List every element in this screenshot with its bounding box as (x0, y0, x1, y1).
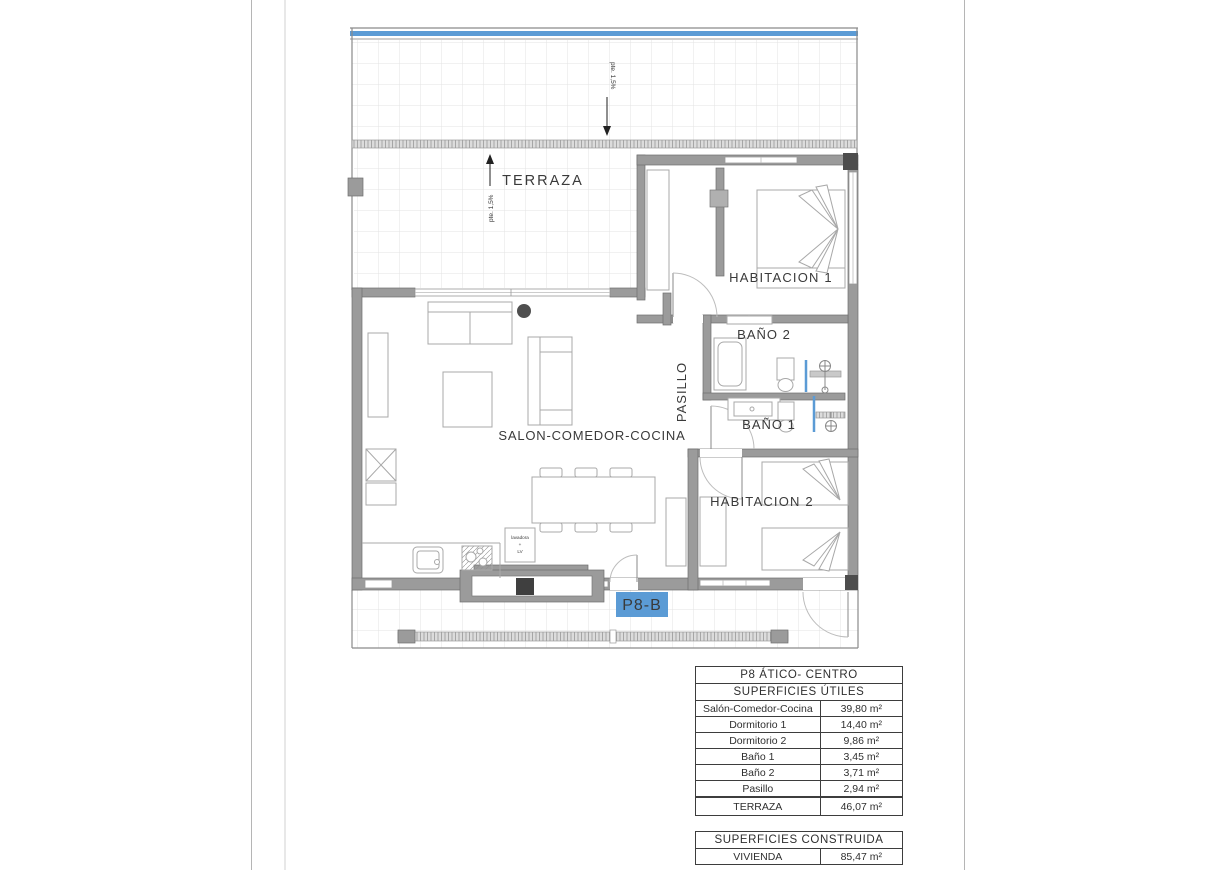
sofa-right (528, 337, 572, 425)
table-row: TERRAZA 46,07 m² (696, 798, 902, 815)
cabinet-pasillo (666, 498, 686, 566)
row-label: Salón-Comedor-Cocina (696, 701, 821, 716)
door-habitacion1 (673, 273, 717, 317)
terrace-slope-label: pte. 1,5% (488, 194, 495, 222)
row-value: 46,07 m² (821, 798, 902, 815)
plan-sheet: pte. 1,5% pte. 1,5% (0, 0, 1220, 870)
shower-bano1 (814, 396, 845, 432)
row-value: 3,45 m² (821, 749, 902, 764)
row-label: Baño 2 (696, 765, 821, 780)
row-label: Dormitorio 2 (696, 733, 821, 748)
table-row: Dormitorio 1 14,40 m² (696, 716, 902, 732)
row-label: Pasillo (696, 781, 821, 796)
row-value: 9,86 m² (821, 733, 902, 748)
row-value: 2,94 m² (821, 781, 902, 796)
table-row: Salón-Comedor-Cocina 39,80 m² (696, 700, 902, 716)
table-subtitle: SUPERFICIES ÚTILES (696, 683, 902, 700)
unit-label: P8-B (622, 597, 662, 614)
kitchen-vent (460, 565, 604, 602)
column (517, 304, 531, 318)
label-habitacion1: HABITACION 1 (729, 270, 833, 285)
table-row: Pasillo 2,94 m² (696, 780, 902, 796)
label-salon: SALON-COMEDOR-COCINA (498, 428, 685, 443)
row-label: VIVIENDA (696, 849, 821, 864)
row-value: 39,80 m² (821, 701, 902, 716)
appliance-box: lavadora + LV (505, 528, 535, 562)
row-value: 14,40 m² (821, 717, 902, 732)
row-value: 85,47 m² (821, 849, 902, 864)
unit-badge: P8-B (616, 592, 668, 617)
useful-surfaces-table: P8 ÁTICO- CENTRO SUPERFICIES ÚTILES Saló… (695, 666, 903, 797)
table-title: P8 ÁTICO- CENTRO (696, 667, 902, 683)
roof-slope-label: pte. 1,5% (609, 62, 616, 90)
wardrobe-hab1 (647, 170, 669, 290)
shaft-box (366, 449, 396, 505)
terrace-surface-table: TERRAZA 46,07 m² (695, 797, 903, 816)
label-bano1: BAÑO 1 (742, 417, 796, 432)
row-label: TERRAZA (696, 798, 821, 815)
built-surfaces-table: SUPERFICIES CONSTRUIDA VIVIENDA 85,47 m² (695, 831, 903, 865)
sofa-top (428, 302, 512, 344)
row-value: 3,71 m² (821, 765, 902, 780)
table-row: VIVIENDA 85,47 m² (696, 848, 902, 864)
bed-single-2 (762, 528, 848, 571)
bottom-railing (398, 630, 788, 643)
floor-plan: pte. 1,5% pte. 1,5% (0, 0, 1220, 870)
label-habitacion2: HABITACION 2 (710, 494, 814, 509)
bathtub (714, 338, 746, 390)
appliance-label-1: lavadora (511, 535, 529, 540)
roof-gutter-strip (352, 140, 857, 148)
table-row: Dormitorio 2 9,86 m² (696, 732, 902, 748)
label-pasillo: PASILLO (674, 362, 689, 422)
dining-table (532, 468, 655, 532)
label-terraza: TERRAZA (502, 173, 584, 189)
top-railing (350, 31, 858, 36)
label-bano2: BAÑO 2 (737, 327, 791, 342)
table-row: Baño 2 3,71 m² (696, 764, 902, 780)
appliance-label-2: + (519, 542, 522, 547)
sink (413, 547, 443, 573)
row-label: Baño 1 (696, 749, 821, 764)
row-label: Dormitorio 1 (696, 717, 821, 732)
cabinet-tall (368, 333, 388, 417)
coffee-table (443, 372, 492, 427)
table-title: SUPERFICIES CONSTRUIDA (696, 832, 902, 848)
cooktop (462, 546, 492, 570)
shower-bano2 (806, 360, 841, 393)
table-row: Baño 1 3,45 m² (696, 748, 902, 764)
toilet-bano2 (777, 358, 794, 392)
door-habitacion2 (700, 457, 742, 499)
